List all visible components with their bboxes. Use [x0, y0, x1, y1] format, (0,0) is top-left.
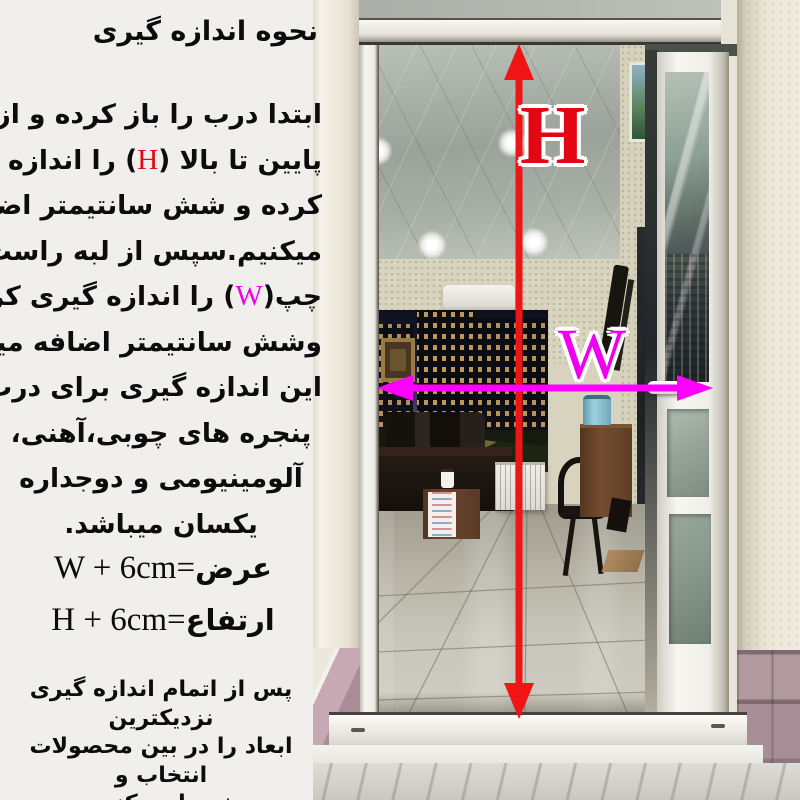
paragraph-line: این اندازه گیری برای درب و — [0, 365, 322, 411]
paragraph-line: کرده و شش سانتیمتر اضافه — [0, 183, 322, 229]
measurement-guide: نحوه اندازه گیری ابتدا درب را باز کرده و… — [0, 0, 800, 800]
paragraph-line: ابتدا درب را باز کرده و از لبه — [0, 92, 322, 138]
height-formula-expression: H + 6cm — [51, 602, 167, 638]
line-text: آلومینیومی و دوجداره — [19, 463, 303, 494]
footer-line: خریداری کنید. — [0, 790, 322, 800]
formulas: عرض=W + 6cm ارتفاع=H + 6cm — [0, 542, 322, 646]
line-text: پایین تا بالا ( — [158, 145, 322, 176]
width-formula-label: عرض — [195, 551, 272, 585]
width-letter-inline: W — [235, 280, 262, 312]
line-text: میکنیم.سپس از لبه راست تا — [0, 236, 322, 267]
footer-line: پس از اتمام اندازه گیری نزدیکترین — [0, 676, 322, 733]
paragraph-line: پنجره های چوبی،آهنی، — [0, 411, 322, 457]
doorway-photo: H W — [313, 0, 800, 800]
line-text: کرده و شش سانتیمتر اضافه — [0, 190, 322, 221]
height-label: H — [520, 94, 585, 178]
footer-line: ابعاد را در بین محصولات انتخاب و — [0, 733, 322, 790]
line-text: ) را اندازه گیری کرده — [0, 281, 235, 312]
paragraph-line: پایین تا بالا (H) را اندازه گیری — [0, 138, 322, 184]
instructions-panel: نحوه اندازه گیری ابتدا درب را باز کرده و… — [0, 0, 322, 800]
paragraph-line: چپ(W) را اندازه گیری کرده — [0, 274, 322, 320]
instructions-paragraph: ابتدا درب را باز کرده و از لبه پایین تا … — [0, 92, 322, 547]
line-text: چپ( — [263, 281, 322, 312]
paragraph-line: یکسان میباشد. — [0, 502, 322, 548]
width-formula-expression: W + 6cm — [54, 550, 176, 586]
paragraph-line: میکنیم.سپس از لبه راست تا — [0, 229, 322, 275]
line-text: ) را اندازه گیری — [0, 145, 137, 176]
width-formula: عرض=W + 6cm — [0, 542, 322, 594]
equals-sign: = — [176, 550, 195, 586]
width-arrow — [377, 375, 713, 401]
height-formula-label: ارتفاع — [186, 603, 275, 637]
line-text: وشش سانتیمتر اضافه میکنیم. — [0, 327, 322, 358]
line-text: پنجره های چوبی،آهنی، — [11, 418, 312, 449]
equals-sign: = — [167, 602, 186, 638]
line-text: یکسان میباشد. — [64, 509, 258, 540]
paragraph-line: آلومینیومی و دوجداره — [0, 456, 322, 502]
line-text: این اندازه گیری برای درب و — [0, 372, 322, 403]
line-text: ابتدا درب را باز کرده و از لبه — [0, 99, 322, 130]
page-title: نحوه اندازه گیری — [0, 16, 318, 47]
height-letter-inline: H — [137, 144, 158, 176]
footer-note: پس از اتمام اندازه گیری نزدیکترین ابعاد … — [0, 676, 322, 800]
width-label: W — [558, 318, 626, 390]
paragraph-line: وشش سانتیمتر اضافه میکنیم. — [0, 320, 322, 366]
height-formula: ارتفاع=H + 6cm — [0, 594, 322, 646]
